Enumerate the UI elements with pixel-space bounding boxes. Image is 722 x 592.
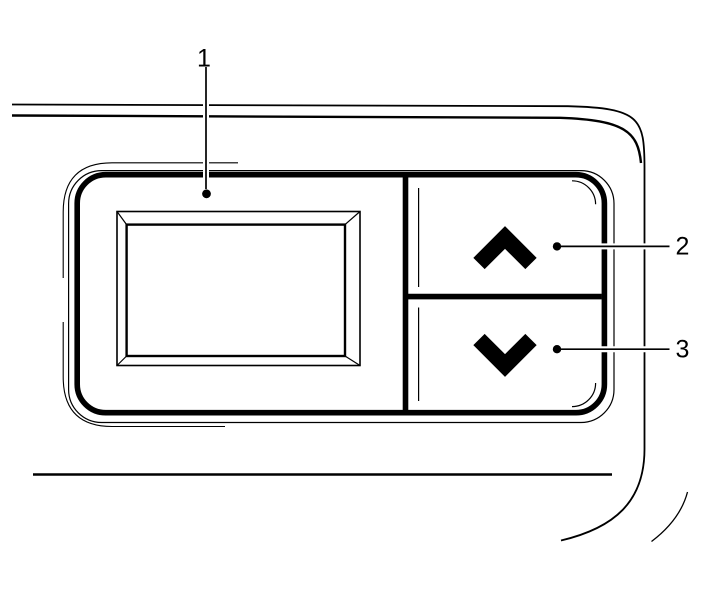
control-panel-illustration: 1 2 3: [0, 0, 722, 592]
display-bevel-bottom-left: [117, 356, 127, 366]
down-arrow-icon[interactable]: [479, 340, 531, 366]
callout-1-label: 1: [197, 45, 211, 73]
display-inner-frame: [127, 225, 345, 356]
up-arrow-icon[interactable]: [479, 238, 531, 264]
display-bevel-top-right: [345, 212, 360, 225]
callout-labels: 1 2 3: [197, 45, 689, 364]
panel-buttons: [479, 238, 531, 366]
body-corner-arc: [652, 492, 688, 542]
control-panel-bezel: [63, 163, 614, 427]
button-cell-inner-arc-bottom: [572, 383, 596, 407]
callout-3-dot: [553, 345, 561, 353]
body-top-edge-inner: [12, 116, 641, 164]
button-cell-inner-arc-top: [572, 181, 596, 205]
bezel-frame-thick: [77, 175, 604, 413]
callout-3-label: 3: [676, 336, 690, 364]
display-outer-frame: [117, 212, 360, 366]
display-bevel-top-left: [117, 212, 127, 225]
callout-2-dot: [553, 242, 561, 250]
callout-1-dot: [202, 189, 211, 198]
callout-leaders: [202, 67, 670, 353]
display-bevel-bottom-right: [345, 356, 360, 366]
callout-2-label: 2: [676, 233, 690, 261]
diagram-canvas: 1 2 3: [0, 0, 722, 592]
display-screen: [117, 212, 360, 366]
